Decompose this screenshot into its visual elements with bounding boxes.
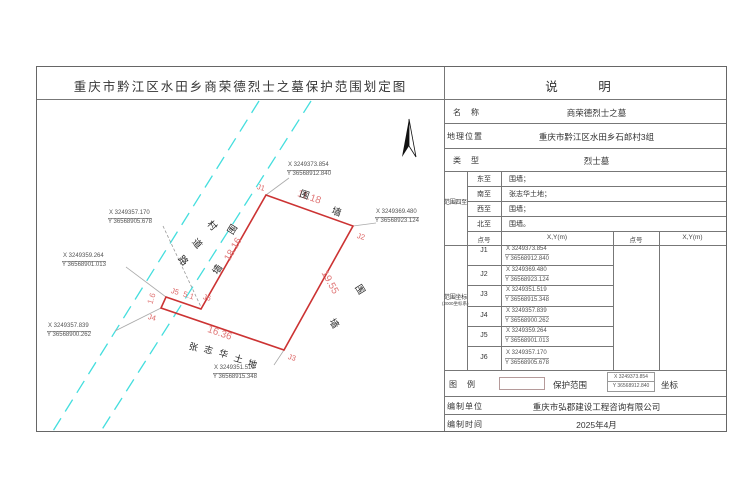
vertex-label-j2: J2	[356, 231, 366, 242]
coord-x: X 3249373.854	[287, 162, 331, 171]
bound-dir-west: 西至	[467, 204, 501, 214]
vertex-label-j1: J1	[256, 182, 266, 193]
divider	[467, 216, 726, 217]
bound-val-north: 围墙。	[509, 219, 530, 229]
point-id: J3	[467, 291, 501, 298]
land-char: 志	[202, 342, 214, 357]
coord-x: X 3249357.170	[108, 210, 152, 219]
vertex-label-j5: J5	[170, 286, 180, 297]
vertex-label-j6: J6	[202, 292, 212, 303]
bounds-label: 范围四至	[444, 197, 468, 206]
panel-divider	[444, 67, 445, 431]
divider	[444, 396, 726, 397]
wall-left-char: 墙	[208, 261, 225, 276]
coord-y: Y 36568901.013	[62, 262, 106, 268]
bound-val-west: 围墙；	[509, 204, 530, 214]
dimension-left: 18.16	[222, 236, 244, 263]
coord-label-j4: X 3249357.839Y 36568900.262	[47, 323, 91, 339]
col-xy-2: X,Y(m)	[659, 234, 726, 241]
coord-y: Y 36568923.124	[375, 218, 419, 224]
wall-left-char: 围	[223, 221, 240, 236]
legend-boundary-swatch	[499, 377, 545, 390]
type-value: 烈士墓	[467, 155, 726, 167]
dimension-notch-long: 5.1	[182, 290, 195, 302]
point-id: J1	[467, 247, 501, 254]
divider	[444, 414, 726, 415]
coord-label-j6: X 3249357.170Y 36568905.678	[108, 210, 152, 226]
bound-dir-east: 东至	[467, 174, 501, 184]
legend-coord-label: 坐标	[661, 379, 678, 391]
location-value: 重庆市黔江区水田乡石郎村3组	[467, 131, 726, 143]
author-value: 重庆市弘郡建设工程咨询有限公司	[467, 401, 726, 413]
divider	[659, 231, 660, 370]
road-char: 村	[204, 217, 221, 233]
point-x: X 3249357.170	[505, 349, 549, 359]
divider	[501, 171, 502, 370]
leader-j5	[126, 267, 166, 297]
point-xy: X 3249359.264Y 36568901.013	[505, 327, 549, 346]
dimension-bottom: 16.36	[206, 324, 233, 343]
point-id: J6	[467, 354, 501, 361]
legend-coordinate-sample: X 3249373.854 Y 36568912.840	[607, 372, 655, 392]
leader-j2	[353, 223, 376, 226]
point-x: X 3249373.854	[505, 245, 549, 255]
leader-j1	[266, 178, 289, 195]
dimension-notch-short: 1.6	[146, 292, 158, 305]
divider	[467, 231, 726, 232]
land-char: 张	[187, 339, 199, 354]
point-y: Y 36568912.840	[505, 256, 549, 262]
point-y: Y 36568901.013	[505, 338, 549, 344]
coord-label-j1: X 3249373.854Y 36568912.840	[287, 162, 331, 178]
col-point-1: 点号	[467, 234, 501, 244]
point-y: Y 36568900.262	[505, 318, 549, 324]
col-point-2: 点号	[613, 234, 659, 244]
bound-dir-north: 北至	[467, 219, 501, 229]
point-id: J2	[467, 271, 501, 278]
legend-sample-x: X 3249373.854	[608, 373, 654, 382]
divider	[444, 123, 726, 124]
road-edge-line	[101, 101, 311, 431]
sheet-title: 重庆市黔江区水田乡商荣德烈士之墓保护范围划定图	[37, 76, 444, 95]
divider	[467, 201, 726, 202]
wall-top-char: 墙	[330, 203, 344, 219]
col-xy-1: X,Y(m)	[501, 234, 613, 241]
land-char: 土	[232, 351, 244, 366]
divider	[613, 231, 614, 370]
point-x: X 3249351.519	[505, 286, 549, 296]
road-char: 路	[175, 252, 192, 268]
bound-val-east: 围墙；	[509, 174, 530, 184]
coord-label-j2: X 3249369.480Y 36568923.124	[375, 209, 419, 225]
page: { "title": "重庆市黔江区水田乡商荣德烈士之墓保护范围划定图", "p…	[0, 0, 756, 485]
road-char: 道	[189, 235, 206, 251]
point-xy: X 3249373.854Y 36568912.840	[505, 245, 549, 264]
point-id: J4	[467, 312, 501, 319]
point-id: J5	[467, 332, 501, 339]
point-xy: X 3249369.480Y 36568923.124	[505, 266, 549, 285]
coord-label-j5: X 3249359.264Y 36568901.013	[62, 253, 106, 269]
coord-x: X 3249359.264	[62, 253, 106, 262]
divider	[444, 370, 726, 371]
land-char: 华	[217, 346, 229, 361]
point-xy: X 3249351.519Y 36568915.348	[505, 286, 549, 305]
coords-system-label: (2000坐标系)	[442, 301, 470, 307]
divider	[37, 99, 726, 100]
legend-sample-y: Y 36568912.840	[608, 382, 654, 390]
date-value: 2025年4月	[467, 419, 726, 431]
wall-right-char: 围	[352, 281, 369, 296]
point-xy: X 3249357.839Y 36568900.262	[505, 307, 549, 326]
coord-x: X 3249357.839	[47, 323, 91, 332]
coord-y: Y 36568915.348	[213, 374, 257, 380]
point-x: X 3249357.839	[505, 307, 549, 317]
point-x: X 3249359.264	[505, 327, 549, 337]
bound-dir-south: 南至	[467, 189, 501, 199]
coord-x: X 3249369.480	[375, 209, 419, 218]
legend-label: 图 例	[449, 379, 476, 390]
coords-label: 范围坐标	[444, 292, 468, 301]
coord-y: Y 36568900.262	[47, 332, 91, 338]
panel-header: 说 明	[444, 76, 726, 95]
dimension-right: 19.55	[319, 269, 341, 296]
divider	[444, 148, 726, 149]
point-y: Y 36568923.124	[505, 277, 549, 283]
vertex-label-j4: J4	[147, 312, 157, 323]
point-xy: X 3249357.170Y 36568905.678	[505, 349, 549, 368]
divider	[444, 171, 726, 172]
divider	[467, 346, 613, 347]
point-y: Y 36568905.678	[505, 360, 549, 366]
north-arrow-icon	[402, 119, 416, 157]
divider	[444, 245, 726, 246]
drawing-sheet: 重庆市黔江区水田乡商荣德烈士之墓保护范围划定图 说 明 名 称 商荣德烈士之墓 …	[36, 66, 727, 432]
vertex-label-j3: J3	[287, 352, 297, 363]
point-x: X 3249369.480	[505, 266, 549, 276]
wall-right-char: 墙	[326, 315, 343, 330]
leader-j3	[274, 350, 284, 365]
bound-val-south: 张志华土地；	[509, 189, 551, 199]
coord-y: Y 36568912.840	[287, 171, 331, 177]
divider	[467, 186, 726, 187]
coord-y: Y 36568905.678	[108, 219, 152, 225]
point-y: Y 36568915.348	[505, 297, 549, 303]
legend-range-label: 保护范围	[553, 379, 587, 391]
name-value: 商荣德烈士之墓	[467, 107, 726, 119]
